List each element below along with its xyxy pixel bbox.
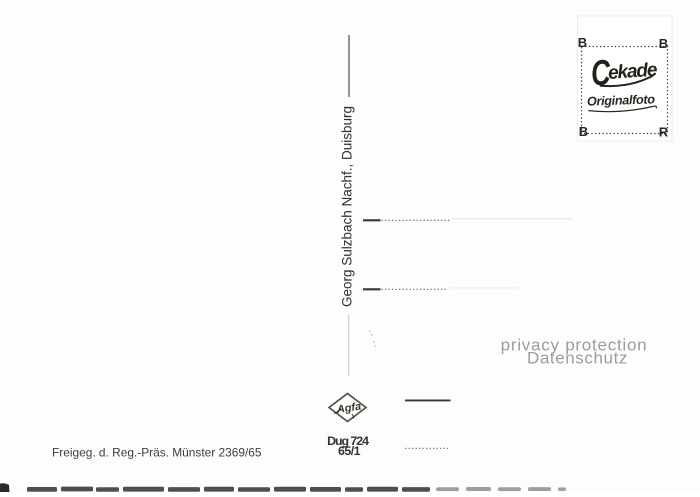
svg-text:Originalfoto: Originalfoto (587, 92, 656, 108)
svg-text:B: B (578, 35, 587, 50)
svg-text:Freigeg. d. Reg.-Präs. Münster: Freigeg. d. Reg.-Präs. Münster 2369/65 (52, 445, 262, 459)
svg-text:B: B (659, 36, 668, 51)
svg-text:B: B (579, 124, 588, 139)
svg-text:Datenschutz: Datenschutz (527, 349, 628, 368)
svg-text:ekade: ekade (607, 60, 658, 84)
svg-text:65/1: 65/1 (338, 444, 361, 458)
svg-text:R: R (659, 125, 669, 140)
svg-text:Georg Sulzbach Nachf., Duisbur: Georg Sulzbach Nachf., Duisburg (340, 106, 355, 307)
